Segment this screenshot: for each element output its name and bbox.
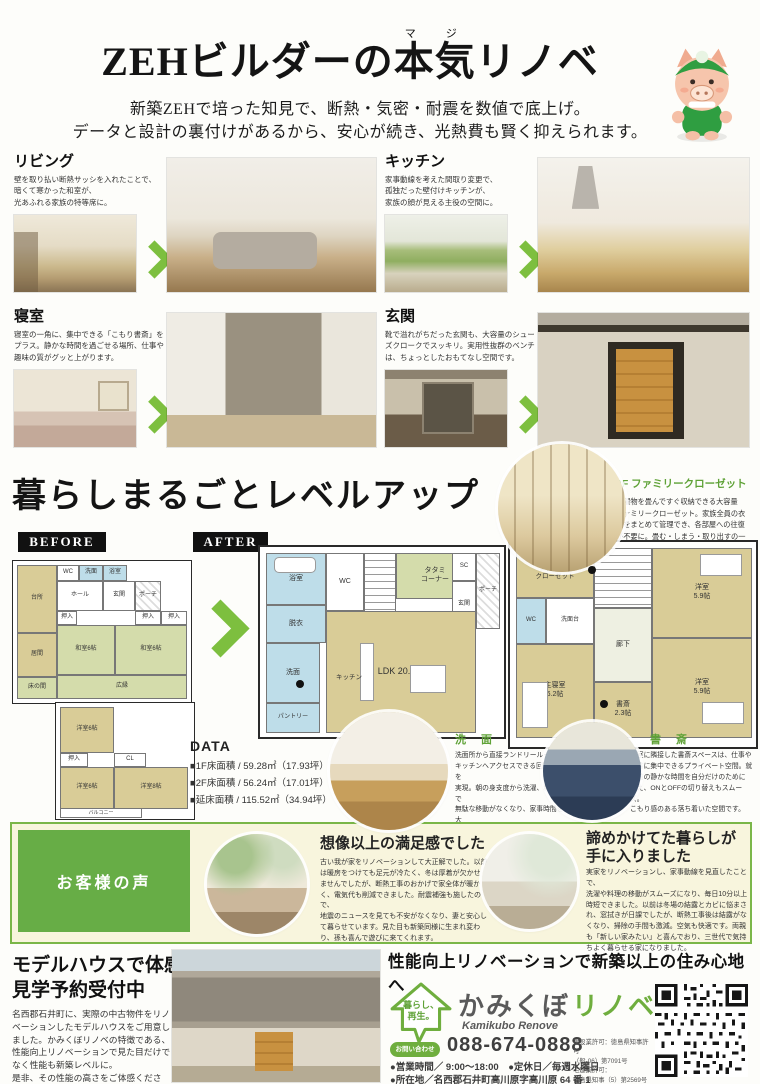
feature-living-desc: 壁を取り払い断熱サッシを入れたことで、 暗くて寒かった和室が、 光あふれる家族の… [14, 174, 179, 208]
room-label: WC [326, 553, 364, 611]
footer-address: ●所在地／名西郡石井町高川原字高川原 64 番 1 [390, 1072, 591, 1084]
room-label: 押入 [161, 611, 187, 625]
study-photo [543, 722, 641, 820]
room-label: 洗面 [79, 565, 103, 581]
closet-heading: 2F ファミリークローゼット [616, 476, 747, 491]
title-furigana: マジ [394, 28, 476, 40]
feature-entrance-desc: 靴で溢れがちだった玄関も、大容量のシュー ズクロークでスッキリ。実用性抜群のベン… [385, 329, 555, 363]
room-label: 押入 [60, 753, 88, 767]
testimonial1-body: 古い我が家をリノベーションして大正解でした。以前 は暖房をつけても足元が冷たく、… [320, 858, 488, 945]
room-label: パントリー [266, 703, 320, 733]
bathtub-shape [274, 557, 316, 573]
bedroom-after-photo [167, 313, 376, 447]
title-pre: ZEHビルダーの [101, 39, 393, 84]
subtitle-line-2: データと設計の裏付けがあるから、安心が続き、光熱費も賢く抑えられます。 [20, 118, 700, 142]
study-body: 寝室に隣接した書斎スペースは、仕事や 読書に集中できるプライベート空間。就 寝前… [630, 751, 754, 816]
room-label: WC [57, 565, 79, 581]
room-label: 洋室6帖 [60, 707, 114, 753]
page-title: ZEHビルダーの本気マジリノベ [20, 28, 680, 87]
room-label: 居間 [17, 633, 57, 677]
footer-hours: ●営業時間／ 9:00～18:00 ●定休日／毎週水曜日 [390, 1059, 599, 1073]
room-label: 脱衣 [266, 605, 326, 643]
feature-kitchen-desc: 家事動線を考えた間取り変更で、 孤独だった壁付けキッチンが、 家族の顔が見える主… [385, 174, 545, 208]
levelup-heading: 暮らしまるごとレベルアップ [12, 468, 480, 517]
modelhouse-heading-1: モデルハウスで体感 [12, 950, 183, 977]
room-label: 床の間 [17, 677, 57, 699]
testimonial2-body: 実家をリノベーションし、家事動線を見直したことで、 洗濯や料理の移動がスムーズに… [586, 868, 750, 955]
brand-name-gray: かみくぼ [458, 986, 570, 1023]
room-label: 和室6帖 [115, 625, 187, 675]
room-label: 廊下 [594, 608, 652, 682]
entrance-before-photo [385, 370, 507, 447]
data-heading: DATA [190, 738, 231, 754]
room-label: 洋室8帖 [114, 767, 188, 809]
qr-code [655, 984, 748, 1077]
data-rows: ■1F床面積 / 59.28㎡（17.93坪） ■2F床面積 / 56.24㎡（… [190, 758, 332, 809]
room-label: 洋室6帖 [60, 767, 114, 809]
feature-living-title: リビング [14, 150, 74, 171]
kitchen-after-photo [538, 158, 749, 292]
modelhouse-photo [172, 950, 380, 1082]
testimonial1-heading: 想像以上の満足感でした [320, 835, 485, 853]
callout-dot [296, 680, 304, 688]
logo-tagline: 暮らし、 再生。 [400, 1000, 442, 1023]
bedroom-before-photo [14, 370, 136, 447]
bed-shape [702, 702, 744, 724]
phone-number: 088-674-0888 [447, 1034, 584, 1057]
bed-shape [522, 682, 548, 728]
title-post: リノベ [476, 39, 599, 84]
kitchen-counter-shape [360, 643, 374, 701]
room-label: 玄関 [103, 581, 135, 611]
washroom-photo [330, 712, 448, 830]
contact-label-pill: お問い合わせ [390, 1042, 440, 1057]
after-1f-floorplan: 浴室 脱衣 WC タタミ コーナー SC ポーチ 玄関 ホール LDK 20.2… [258, 545, 506, 739]
brand-name-green: リノベ [572, 986, 656, 1023]
kamikubo-logo: 暮らし、 再生。 [390, 982, 452, 1048]
washroom-heading: 洗 面 [455, 731, 498, 747]
entrance-after-photo [538, 313, 749, 447]
before-2f-floorplan: 洋室6帖 押入 CL 洋室6帖 洋室8帖 バルコニー [55, 702, 195, 820]
callout-dot [588, 566, 596, 574]
testimonial1-photo [207, 834, 307, 934]
title-ruby: 本気マジ [394, 39, 476, 84]
customer-voice-label: お客様の声 [18, 830, 190, 932]
sofa-shape [410, 665, 446, 693]
testimonial2-photo [482, 834, 577, 929]
before-1f-floorplan: 台所 WC 洗面 浴室 ホール 玄関 ポーチ 居間 押入 押入 押入 和室6帖 … [12, 560, 192, 704]
data-row-1f: ■1F床面積 / 59.28㎡（17.93坪） [190, 758, 332, 775]
room-label: SC [452, 553, 476, 581]
room-label: WC [516, 598, 546, 644]
room-label: 洗面 [266, 643, 320, 703]
modelhouse-body: 名西郡石井町に、実際の中古物件をリノ ベーションしたモデルハウスをご用意し まし… [12, 1008, 172, 1084]
testimonial2-heading: 諦めかけてた暮らしが 手に入りました [586, 830, 736, 866]
room-label: CL [114, 753, 146, 767]
data-row-total: ■延床面積 / 115.52㎡（34.94坪） [190, 792, 332, 809]
feature-entrance-title: 玄関 [385, 305, 415, 326]
kitchen-before-photo [385, 215, 507, 292]
brand-name-en: Kamikubo Renove [462, 1020, 558, 1032]
pig-mascot-icon [650, 30, 754, 144]
room-label: 洗面台 [546, 598, 594, 644]
before-badge: BEFORE [18, 532, 106, 552]
closet-photo [498, 444, 626, 572]
data-row-2f: ■2F床面積 / 56.24㎡（17.01坪） [190, 775, 332, 792]
feature-bedroom-title: 寝室 [14, 305, 44, 326]
room-label: バルコニー [60, 808, 142, 818]
living-after-photo [167, 158, 376, 292]
room-label: 浴室 [103, 565, 127, 581]
study-heading: 書 斎 [650, 731, 693, 747]
feature-bedroom-desc: 寝室の一角に、集中できる「こもり書斎」を プラス。静かな時間を過ごせる場所、仕事… [14, 329, 184, 363]
subtitle-line-1: 新築ZEHで培った知見で、断熱・気密・耐震を数値で底上げ。 [20, 95, 700, 119]
modelhouse-heading-2: 見学予約受付中 [12, 975, 145, 1002]
flyer-poster: ZEHビルダーの本気マジリノベ 新築ZEHで培った知見で、断熱・気密・耐震を数値… [0, 0, 760, 1084]
room-label: 広縁 [57, 675, 187, 699]
room-label: ポーチ [476, 553, 500, 629]
room-label: 押入 [135, 611, 161, 625]
room-label: ポーチ [135, 581, 161, 611]
after-badge: AFTER [193, 532, 268, 552]
room-label: ホール [57, 581, 103, 611]
after-2f-floorplan: ファミリー クローゼット 洋室 5.9帖 WC 洗面台 廊下 主寝室 6.2帖 … [508, 540, 758, 749]
arrow-right-icon [192, 600, 250, 658]
feature-kitchen-title: キッチン [385, 150, 445, 171]
room-label: キッチン [336, 671, 362, 681]
title-ruby-base: 本気 [394, 39, 476, 84]
callout-dot [600, 700, 608, 708]
room-label: 和室6帖 [57, 625, 115, 675]
room-label: 台所 [17, 565, 57, 633]
living-before-photo [14, 215, 136, 292]
room-label: 押入 [57, 611, 77, 625]
bed-shape [700, 554, 742, 576]
